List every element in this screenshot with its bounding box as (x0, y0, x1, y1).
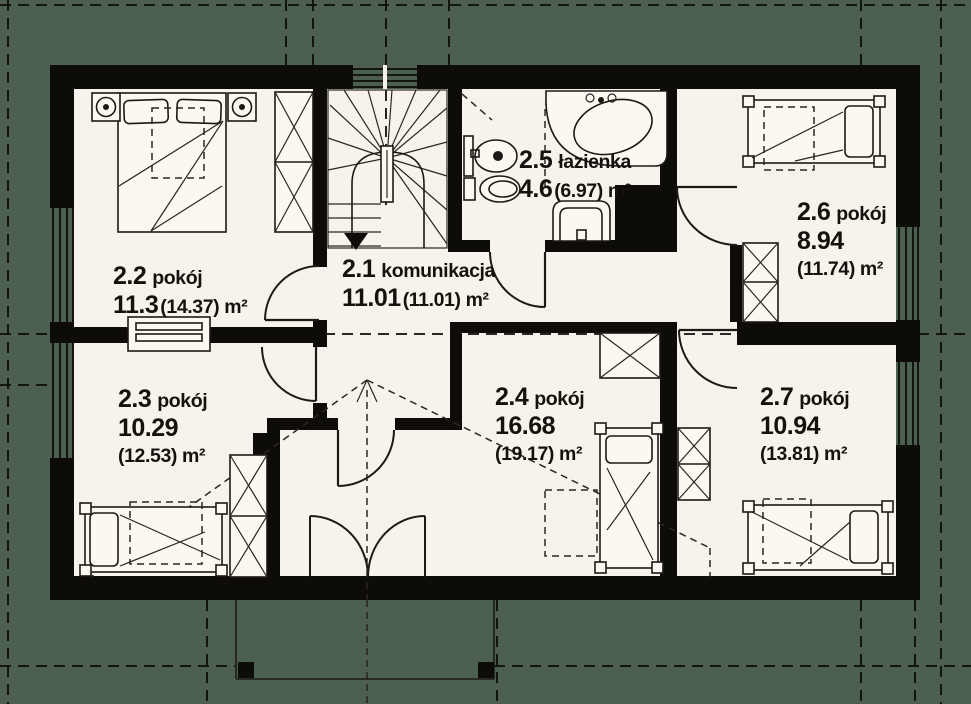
single-bed-room-2-7 (743, 499, 893, 574)
nightstand-lamp-left (92, 93, 120, 121)
svg-text:4.6(6.97) m²: 4.6(6.97) m² (519, 175, 632, 203)
svg-text:(13.81) m²: (13.81) m² (760, 443, 848, 465)
wardrobe-room-2-6 (743, 243, 778, 322)
wardrobe-room-2-2 (275, 92, 313, 232)
balcony (236, 600, 494, 679)
single-bed-room-2-6 (743, 96, 885, 170)
radiator (128, 317, 210, 351)
window-room-2-3 (50, 343, 74, 458)
floor-plan-drawing: 2.2pokój 11.3(14.37) m² 2.1komunikacja 1… (0, 0, 971, 704)
svg-text:10.94: 10.94 (760, 412, 821, 440)
svg-text:2.1komunikacja: 2.1komunikacja (342, 255, 496, 283)
window-stair-hall (353, 65, 417, 89)
balcony-post-right (478, 662, 494, 678)
window-room-2-2 (50, 208, 74, 322)
svg-text:2.2pokój: 2.2pokój (113, 262, 202, 290)
washbasin (553, 201, 610, 241)
floor-plan-page: 2.2pokój 11.3(14.37) m² 2.1komunikacja 1… (0, 0, 971, 704)
svg-text:2.5łazienka: 2.5łazienka (519, 146, 631, 174)
window-room-2-6 (896, 227, 920, 320)
svg-text:(11.74) m²: (11.74) m² (797, 258, 884, 280)
window-room-2-7 (896, 362, 920, 445)
svg-text:11.3(14.37) m²: 11.3(14.37) m² (113, 291, 248, 319)
wardrobe-room-2-7 (678, 428, 710, 500)
single-bed-room-2-4 (595, 423, 663, 573)
toilet (464, 176, 520, 202)
svg-text:8.94: 8.94 (797, 227, 844, 255)
svg-text:11.01(11.01) m²: 11.01(11.01) m² (342, 284, 490, 312)
svg-text:2.4pokój: 2.4pokój (495, 383, 584, 411)
svg-text:2.7pokój: 2.7pokój (760, 383, 849, 411)
nightstand-lamp-right (228, 93, 256, 121)
svg-text:2.6pokój: 2.6pokój (797, 198, 886, 226)
single-bed-room-2-3 (80, 502, 227, 576)
svg-text:2.3pokój: 2.3pokój (118, 385, 207, 413)
wardrobe-room-2-4 (600, 333, 660, 378)
svg-text:(12.53) m²: (12.53) m² (118, 445, 206, 467)
double-bed (118, 93, 226, 232)
svg-text:(19.17) m²: (19.17) m² (495, 443, 583, 465)
svg-text:16.68: 16.68 (495, 412, 556, 440)
balcony-post-left (238, 662, 254, 678)
svg-text:10.29: 10.29 (118, 414, 178, 442)
wardrobe-room-2-3 (230, 455, 267, 577)
